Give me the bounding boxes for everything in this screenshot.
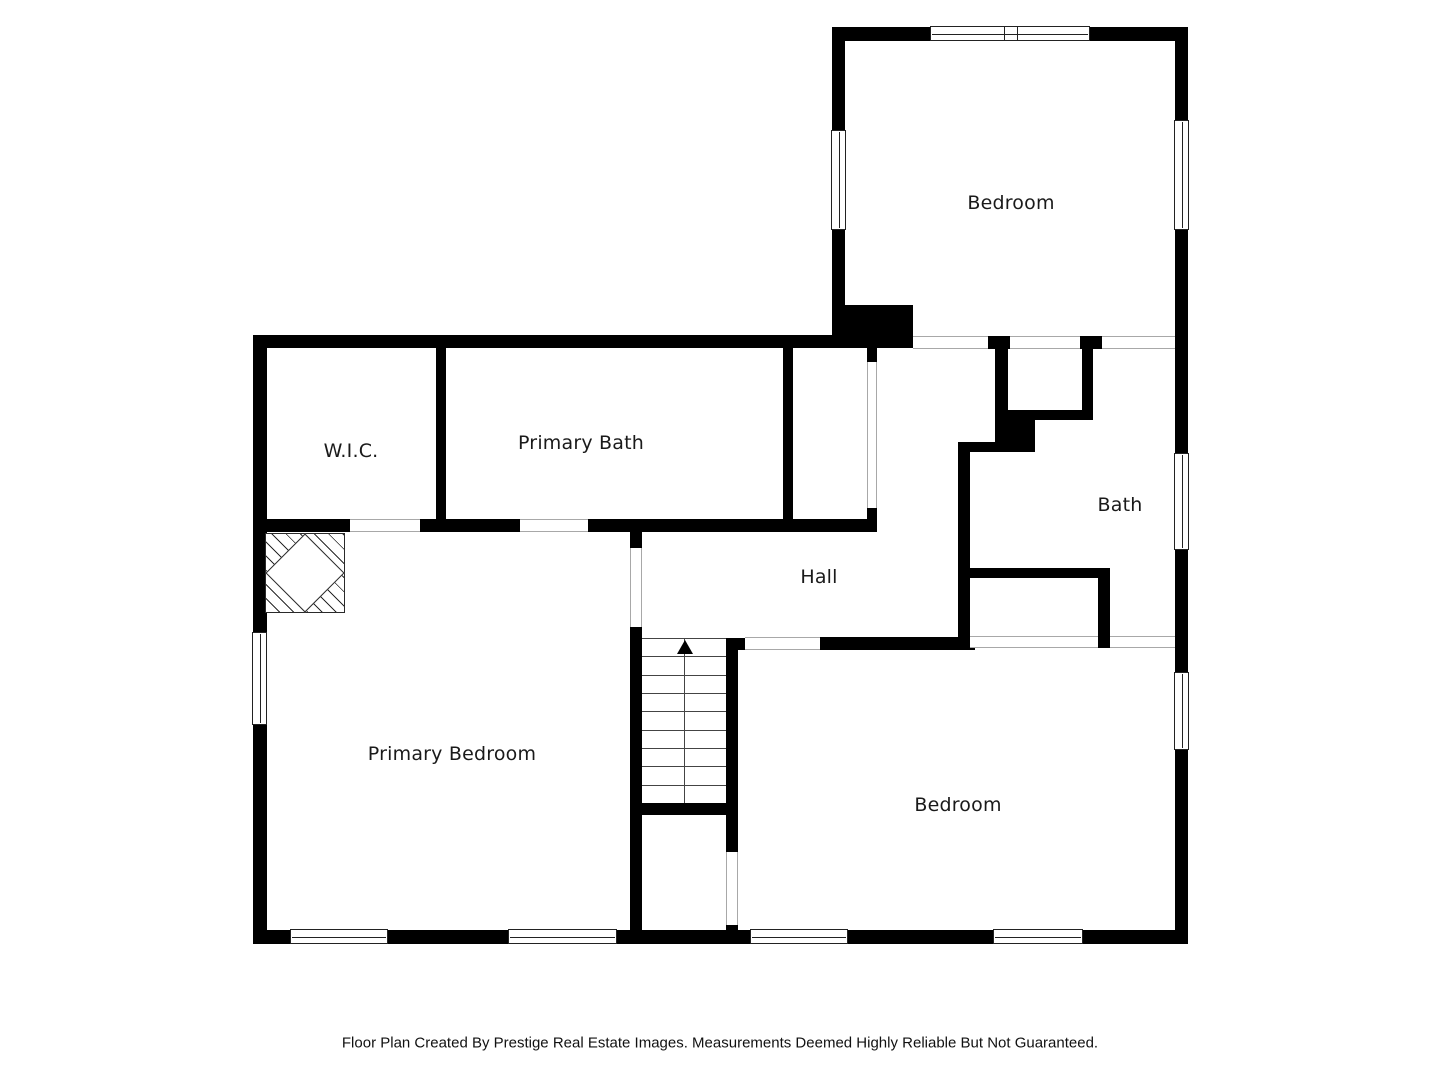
- wall-bath-left: [958, 442, 970, 578]
- door-opening-top-closet: [1010, 336, 1080, 349]
- wall-band-divider-tee: [420, 519, 520, 532]
- wall-primary-bath-right: [783, 345, 793, 522]
- window-pane-line: [752, 937, 846, 938]
- window-bottom-2: [508, 929, 617, 944]
- wall-stairs-right: [726, 638, 738, 852]
- wall-stairs-top-stub: [726, 638, 745, 650]
- window-mullion: [1004, 27, 1005, 40]
- wall-top-closet-right: [1082, 348, 1093, 420]
- window-bath-right: [1174, 453, 1189, 550]
- window-pane-line: [510, 937, 615, 938]
- window-bedroom-bottom-right: [1174, 672, 1189, 750]
- chimney-hatch: [265, 533, 345, 613]
- window-bottom-1: [290, 929, 388, 944]
- wall-closet-stub-top: [867, 348, 877, 362]
- wall-under-stairs: [630, 803, 726, 815]
- wall-lower-closet-left: [958, 568, 970, 648]
- stairs-up-arrow-icon: [677, 640, 693, 654]
- door-opening-bath-south: [1110, 636, 1175, 648]
- door-opening-bath-north: [1102, 336, 1175, 349]
- wall-band-stub-b: [1080, 336, 1102, 349]
- wall-notch-bedroom-corner: [845, 305, 913, 348]
- window-primary-bedroom-left: [252, 632, 267, 725]
- room-label-wic: W.I.C.: [324, 440, 379, 462]
- window-top-double: [930, 26, 1090, 41]
- staircase: [642, 638, 726, 803]
- disclaimer-text: Floor Plan Created By Prestige Real Esta…: [342, 1035, 1098, 1052]
- window-bottom-4: [993, 929, 1083, 944]
- wall-top-closet-left: [995, 348, 1008, 413]
- floor-plan-canvas: Bedroom W.I.C. Primary Bath Hall Bath Pr…: [0, 0, 1440, 1080]
- door-opening-wic: [350, 519, 420, 532]
- wall-primary-bedroom-right: [630, 627, 642, 930]
- window-pane-line: [932, 34, 1088, 35]
- wall-lower-closet-right: [1098, 568, 1110, 648]
- room-label-bedroom-bottom: Bedroom: [914, 794, 1001, 816]
- room-label-bath: Bath: [1098, 494, 1143, 516]
- window-pane-line: [260, 634, 261, 723]
- window-pane-line: [839, 132, 840, 228]
- door-opening-primary-bedroom: [630, 548, 642, 627]
- window-pane-line: [995, 937, 1081, 938]
- stair-center-line: [684, 638, 685, 803]
- wall-band-stub-a: [988, 336, 1010, 349]
- door-opening-bottom-bedroom: [745, 637, 820, 650]
- window-pane-line: [292, 937, 386, 938]
- window-pane-line: [1182, 455, 1183, 548]
- wall-band-bath-hall: [588, 519, 877, 532]
- wall-wic-divider: [436, 345, 446, 521]
- door-opening-understair-closet: [726, 852, 738, 925]
- wall-stairs-right-stub: [726, 925, 738, 934]
- wall-hall-left-stub: [630, 532, 642, 548]
- window-bedroom-top-right: [1174, 120, 1189, 230]
- window-mullion: [1017, 27, 1018, 40]
- wall-closet-stub-bottom: [867, 508, 877, 522]
- window-bedroom-top-left: [831, 130, 846, 230]
- door-opening-lower-closet: [970, 636, 1098, 648]
- wall-top-left-band: [253, 335, 845, 348]
- room-label-primary-bath: Primary Bath: [518, 432, 644, 454]
- window-bottom-3: [750, 929, 848, 944]
- wall-top-closet-bottom: [995, 410, 1093, 420]
- room-label-bedroom-top: Bedroom: [967, 192, 1054, 214]
- wall-bath-bottom: [958, 568, 1110, 578]
- room-label-hall: Hall: [800, 566, 837, 588]
- room-label-primary-bedroom: Primary Bedroom: [368, 743, 536, 765]
- door-opening-hall-closet: [867, 362, 877, 508]
- door-opening-primary-bath: [520, 519, 588, 532]
- door-opening-top-bedroom: [913, 336, 988, 349]
- wall-hall-bottom: [820, 637, 975, 650]
- window-pane-line: [1182, 122, 1183, 228]
- wall-band-wic: [253, 519, 350, 532]
- window-pane-line: [1182, 674, 1183, 748]
- chimney-flue-diamond: [265, 533, 344, 612]
